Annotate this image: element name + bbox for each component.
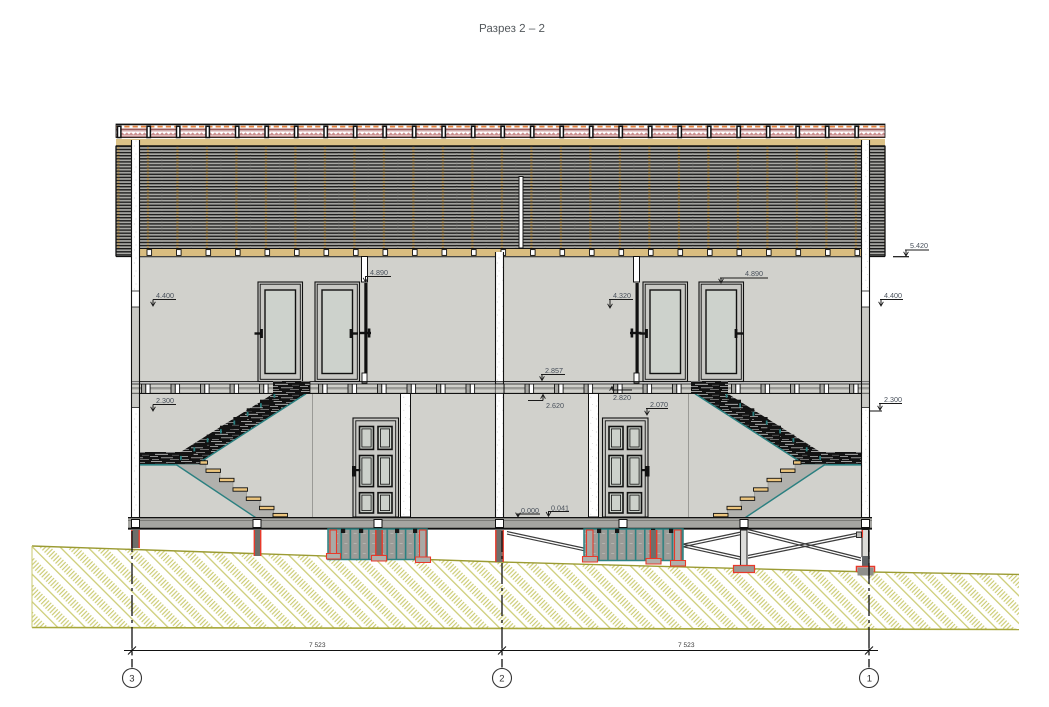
svg-text:7 523: 7 523 [678,642,695,649]
svg-text:4.400: 4.400 [156,291,174,300]
svg-text:2.300: 2.300 [156,396,174,405]
svg-text:2.857: 2.857 [545,366,563,375]
svg-text:7 523: 7 523 [309,642,326,649]
svg-text:4.320: 4.320 [613,291,631,300]
svg-text:2.620: 2.620 [546,401,564,410]
svg-text:5.420: 5.420 [910,241,928,250]
svg-text:2.820: 2.820 [613,393,631,402]
svg-text:1: 1 [867,674,872,685]
svg-text:Разрез 2 – 2: Разрез 2 – 2 [479,22,545,35]
svg-text:4.890: 4.890 [370,268,388,277]
svg-text:2.300: 2.300 [884,395,902,404]
svg-text:2: 2 [499,674,504,685]
svg-text:2.070: 2.070 [650,400,668,409]
svg-text:3: 3 [129,674,134,685]
svg-text:4.400: 4.400 [884,291,902,300]
svg-text:4.890: 4.890 [745,269,763,278]
